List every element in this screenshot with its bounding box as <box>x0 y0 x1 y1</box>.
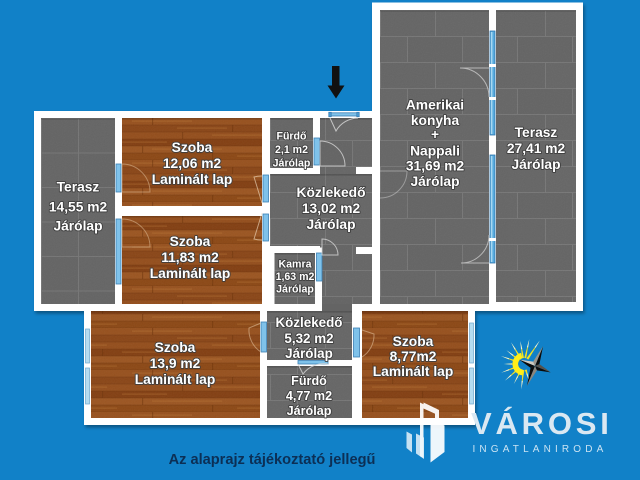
svg-text:1,63 m2: 1,63 m2 <box>276 271 315 283</box>
svg-text:Amerikai: Amerikai <box>406 98 464 113</box>
svg-text:Laminált lap: Laminált lap <box>373 364 454 379</box>
svg-text:Járólap: Járólap <box>276 284 314 296</box>
svg-text:27,41 m2: 27,41 m2 <box>507 141 566 156</box>
svg-text:VÁROSI: VÁROSI <box>471 406 613 441</box>
svg-text:Járólap: Járólap <box>53 219 102 234</box>
svg-text:Járólap: Járólap <box>410 174 459 189</box>
svg-text:14,55 m2: 14,55 m2 <box>49 200 108 215</box>
svg-text:Járólap: Járólap <box>287 404 332 418</box>
svg-text:13,9 m2: 13,9 m2 <box>150 356 201 371</box>
svg-text:Közlekedő: Közlekedő <box>276 315 343 330</box>
svg-text:Közlekedő: Közlekedő <box>297 185 366 200</box>
svg-text:Laminált lap: Laminált lap <box>135 372 216 387</box>
svg-text:4,77 m2: 4,77 m2 <box>286 389 332 403</box>
svg-text:5,32 m2: 5,32 m2 <box>284 331 333 346</box>
svg-text:Járólap: Járólap <box>285 346 333 361</box>
svg-text:Járólap: Járólap <box>511 157 560 172</box>
svg-text:Az alaprajz tájékoztató jelleg: Az alaprajz tájékoztató jellegű <box>169 452 376 468</box>
svg-text:Szoba: Szoba <box>155 340 196 355</box>
svg-text:Járólap: Járólap <box>306 217 355 232</box>
svg-text:Terasz: Terasz <box>57 180 100 195</box>
svg-text:Laminált lap: Laminált lap <box>152 172 233 187</box>
svg-text:Fürdő: Fürdő <box>276 131 307 143</box>
svg-text:konyha: konyha <box>411 113 460 128</box>
svg-text:12,06 m2: 12,06 m2 <box>163 156 222 171</box>
svg-text:Fürdő: Fürdő <box>291 374 327 388</box>
svg-text:Járólap: Járólap <box>273 158 311 170</box>
svg-text:INGATLANIRODA: INGATLANIRODA <box>473 444 608 455</box>
svg-text:31,69 m2: 31,69 m2 <box>406 159 465 174</box>
svg-text:11,83 m2: 11,83 m2 <box>161 250 219 265</box>
svg-text:Kamra: Kamra <box>279 259 312 271</box>
svg-text:2,1 m2: 2,1 m2 <box>275 144 308 156</box>
svg-text:Szoba: Szoba <box>170 234 211 249</box>
svg-text:8,77m2: 8,77m2 <box>390 349 437 364</box>
svg-text:Szoba: Szoba <box>393 334 434 349</box>
svg-text:Terasz: Terasz <box>515 125 558 140</box>
svg-text:+: + <box>431 127 439 142</box>
svg-text:Szoba: Szoba <box>172 140 213 155</box>
svg-text:Nappali: Nappali <box>410 144 460 159</box>
svg-text:13,02 m2: 13,02 m2 <box>302 201 361 216</box>
svg-text:Laminált lap: Laminált lap <box>150 266 231 281</box>
